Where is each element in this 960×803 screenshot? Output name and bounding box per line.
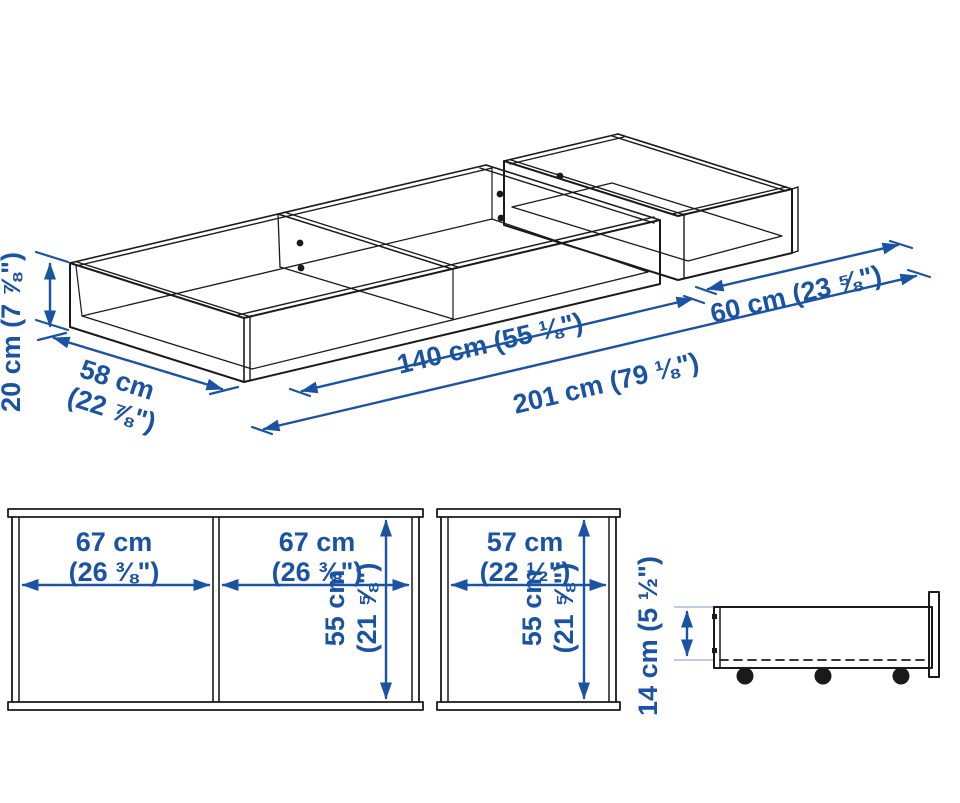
caster-wheel <box>893 668 910 685</box>
dim-label-plan-large-right-cm: 67 cm <box>279 527 356 557</box>
caster-wheel <box>737 668 754 685</box>
dim-label-plan-large-left-in: (26 ⅜") <box>69 557 160 587</box>
dim-label-plan-small-depth-in: (21 ⅝") <box>549 563 579 654</box>
dim-label-height: 20 cm (7 ⅞") <box>0 252 26 412</box>
fitting-mark <box>712 648 717 653</box>
dim-plan-large-left: 67 cm (26 ⅜") <box>23 527 209 587</box>
screw-hole <box>557 173 564 180</box>
screw-hole <box>497 191 504 198</box>
dim-label-side-height: 14 cm (5 ½") <box>633 556 663 716</box>
side-view: 14 cm (5 ½") <box>633 556 939 716</box>
screw-hole <box>298 265 305 272</box>
plan-view-large: 67 cm (26 ⅜") 67 cm (26 ⅜") 55 cm (21 ⅝"… <box>8 509 423 710</box>
plan-view-small: 57 cm (22 ½") 55 cm (21 ⅝") <box>437 509 620 710</box>
large-box-drawing <box>70 165 660 382</box>
dim-side-height: 14 cm (5 ½") <box>633 556 687 716</box>
dimension-diagram: 20 cm (7 ⅞") 58 cm (22 ⅞") 140 cm (55 ⅛"… <box>0 0 960 803</box>
side-rail-drawing <box>712 592 939 685</box>
screw-hole <box>297 240 304 247</box>
dim-label-length-large: 140 cm (55 ⅛") <box>394 307 586 380</box>
fitting-mark <box>712 614 717 619</box>
dim-label-plan-small-depth-cm: 55 cm <box>517 570 547 647</box>
dim-label-length-total: 201 cm (79 ⅛") <box>510 347 702 420</box>
dim-label-plan-large-depth-cm: 55 cm <box>320 570 350 647</box>
small-box-drawing <box>504 134 798 280</box>
isometric-view: 20 cm (7 ⅞") 58 cm (22 ⅞") 140 cm (55 ⅛"… <box>0 134 930 438</box>
dim-label-plan-large-left-cm: 67 cm <box>76 527 153 557</box>
caster-wheel <box>815 668 832 685</box>
dim-label-plan-small-width-cm: 57 cm <box>487 527 564 557</box>
dim-height: 20 cm (7 ⅞") <box>0 252 68 412</box>
dim-label-plan-large-depth-in: (21 ⅝") <box>352 563 382 654</box>
diagram-canvas: 20 cm (7 ⅞") 58 cm (22 ⅞") 140 cm (55 ⅛"… <box>0 0 960 803</box>
